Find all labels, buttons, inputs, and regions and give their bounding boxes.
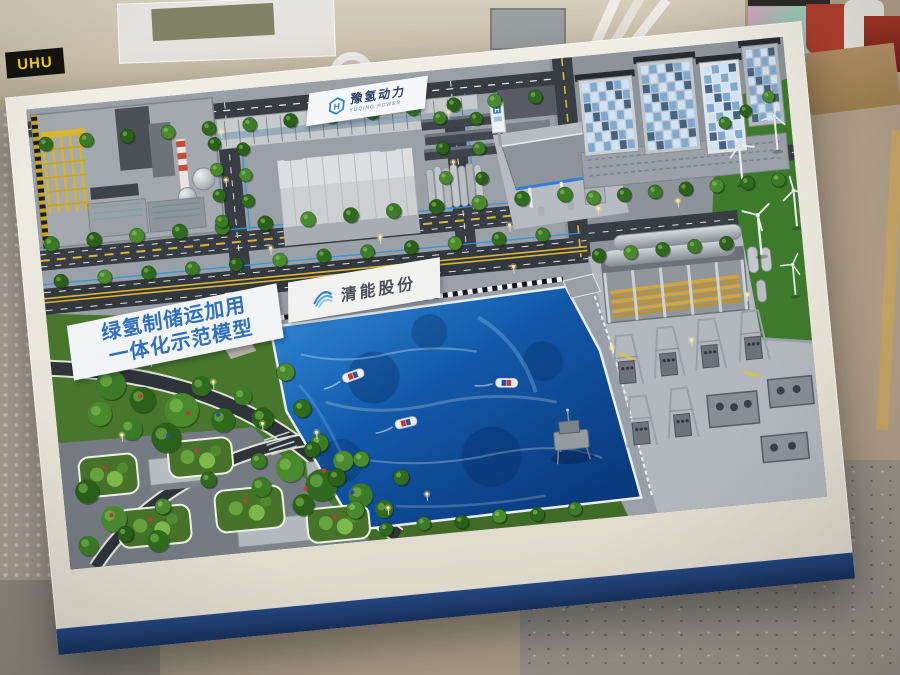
equipment-block [497, 85, 558, 120]
fuel-dispenser [538, 206, 545, 216]
hexagon-h-logo-icon: H [328, 95, 346, 115]
red-bucket [806, 4, 846, 54]
photo-canvas: UHU [0, 0, 900, 675]
industrial-plant-zone [31, 98, 225, 249]
scale-model-table: H [5, 21, 855, 655]
model-surface: H [26, 37, 827, 570]
office-tower [633, 51, 704, 154]
fan-shell-logo-icon [312, 284, 334, 310]
planter-bed [214, 485, 286, 533]
svg-text:H: H [333, 100, 340, 111]
green-cloth [151, 3, 275, 41]
office-tower [574, 69, 642, 156]
vertical-tank [747, 246, 759, 273]
vertical-tank [756, 280, 767, 303]
glue-box: UHU [5, 48, 65, 79]
factory-hall [276, 139, 419, 246]
workshop-photo: { "model": { "banner_title": { "line1": … [0, 0, 900, 675]
company-name: 清能股份 [341, 269, 416, 306]
